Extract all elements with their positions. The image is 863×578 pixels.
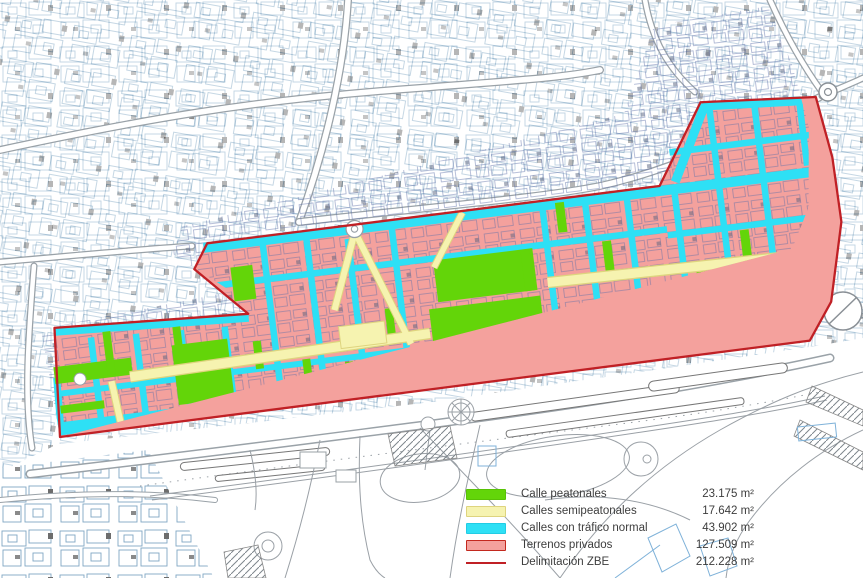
- legend-row-terrenos-privados: Terrenos privados 127.509 m²: [466, 537, 754, 554]
- legend-label: Terrenos privados: [521, 537, 688, 554]
- legend-row-delimitacion-zbe: Delimitación ZBE 212.228 m²: [466, 554, 754, 571]
- legend-label: Calle peatonales: [521, 486, 688, 503]
- legend-value: 127.509 m²: [688, 537, 754, 554]
- legend-value: 212.228 m²: [688, 554, 754, 571]
- legend: Calle peatonales 23.175 m² Calles semipe…: [466, 486, 754, 571]
- legend-label: Delimitación ZBE: [521, 554, 688, 571]
- legend-label: Calles semipeatonales: [521, 503, 688, 520]
- legend-value: 43.902 m²: [688, 520, 754, 537]
- legend-row-calle-peatonales: Calle peatonales 23.175 m²: [466, 486, 754, 503]
- legend-row-calles-semipeatonales: Calles semipeatonales 17.642 m²: [466, 503, 754, 520]
- legend-swatch-calles-trafico-normal: [466, 523, 506, 534]
- legend-swatch-terrenos-privados: [466, 540, 506, 551]
- legend-value: 17.642 m²: [688, 503, 754, 520]
- legend-row-calles-trafico-normal: Calles con tráfico normal 43.902 m²: [466, 520, 754, 537]
- legend-swatch-delimitacion-zbe: [466, 562, 506, 564]
- map-page: Calle peatonales 23.175 m² Calles semipe…: [0, 0, 863, 578]
- legend-label: Calles con tráfico normal: [521, 520, 688, 537]
- roundabout-top-right: [819, 83, 837, 101]
- legend-value: 23.175 m²: [688, 486, 754, 503]
- legend-swatch-calles-semipeatonales: [466, 506, 506, 517]
- legend-swatch-calle-peatonales: [466, 489, 506, 500]
